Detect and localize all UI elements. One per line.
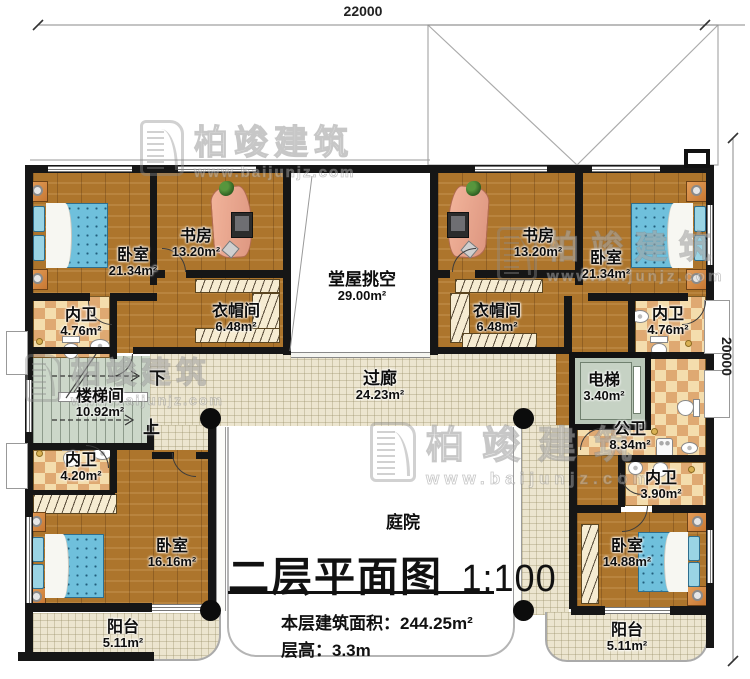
room-label-study-r: 书房 13.20m² (514, 228, 562, 259)
room-area: 5.11m² (607, 639, 647, 653)
room-area: 4.20m² (60, 469, 101, 483)
room-label-hall-void: 堂屋挑空 29.00m² (328, 271, 396, 303)
stair-down-label: 下 (149, 364, 166, 389)
room-label-stairwell: 楼梯间 10.92m² (76, 388, 124, 419)
room-area: 6.48m² (212, 320, 260, 334)
room-label-bedroom-tr: 卧室 21.34m² (582, 250, 630, 281)
floor-area-text: 本层建筑面积：244.25m² (281, 609, 473, 634)
room-label-bedroom-tl: 卧室 21.34m² (109, 247, 157, 278)
title-underline (228, 591, 494, 594)
room-label-bath-br: 内卫 3.90m² (640, 470, 681, 501)
room-name: 衣帽间 (212, 303, 260, 320)
room-name: 卧室 (582, 250, 630, 267)
room-area: 24.23m² (356, 388, 404, 402)
room-area: 6.48m² (473, 320, 521, 334)
room-name: 衣帽间 (473, 303, 521, 320)
floor-plan-canvas: 卧室 21.34m² 书房 13.20m² 堂屋挑空 29.00m² 书房 13… (0, 0, 750, 679)
room-label-elevator: 电梯 3.40m² (583, 372, 624, 403)
room-name: 楼梯间 (76, 388, 124, 405)
dimension-right: 20000 (719, 337, 735, 376)
room-area: 13.20m² (172, 245, 220, 259)
drawing-scale: 1:100 (462, 558, 557, 601)
stair-up-label: 上 (143, 413, 160, 438)
dimension-top: 22000 (318, 3, 408, 19)
room-label-cloak-l: 衣帽间 6.48m² (212, 303, 260, 334)
room-name: 内卫 (60, 452, 101, 469)
room-label-bath-tr: 内卫 4.76m² (647, 306, 688, 337)
room-name: 阳台 (607, 622, 647, 639)
room-area: 5.11m² (103, 636, 143, 650)
room-label-study-l: 书房 13.20m² (172, 228, 220, 259)
room-label-bedroom-br: 卧室 14.88m² (603, 538, 651, 569)
room-label-cloak-r: 衣帽间 6.48m² (473, 303, 521, 334)
room-area: 8.34m² (609, 438, 650, 452)
room-label-public-bath: 公卫 8.34m² (609, 421, 650, 452)
room-area: 4.76m² (60, 324, 101, 338)
room-area: 21.34m² (582, 267, 630, 281)
room-area: 13.20m² (514, 245, 562, 259)
room-area: 14.88m² (603, 555, 651, 569)
title-block: 二层平面图 1:100 (228, 543, 559, 603)
page-title: 二层平面图 (228, 543, 443, 603)
room-area: 16.16m² (148, 555, 196, 569)
room-area: 4.76m² (647, 323, 688, 337)
room-area: 21.34m² (109, 264, 157, 278)
room-name: 公卫 (609, 421, 650, 438)
room-name: 电梯 (583, 372, 624, 389)
room-label-corridor: 过廊 24.23m² (356, 370, 404, 402)
room-name: 内卫 (647, 306, 688, 323)
room-name: 卧室 (603, 538, 651, 555)
room-name: 内卫 (60, 307, 101, 324)
room-label-bath-bl: 内卫 4.20m² (60, 452, 101, 483)
room-label-balcony-r: 阳台 5.11m² (607, 622, 647, 653)
room-name: 卧室 (148, 538, 196, 555)
room-name: 卧室 (109, 247, 157, 264)
room-label-bedroom-bl: 卧室 16.16m² (148, 538, 196, 569)
room-name: 书房 (514, 228, 562, 245)
floor-height-text: 层高：3.3m (281, 636, 371, 661)
room-area: 10.92m² (76, 405, 124, 419)
room-label-bath-tl: 内卫 4.76m² (60, 307, 101, 338)
room-name: 阳台 (103, 619, 143, 636)
room-name: 书房 (172, 228, 220, 245)
room-area: 3.40m² (583, 389, 624, 403)
room-area: 3.90m² (640, 487, 681, 501)
room-label-balcony-l: 阳台 5.11m² (103, 619, 143, 650)
room-name: 过廊 (356, 370, 404, 388)
room-name: 堂屋挑空 (328, 271, 396, 289)
room-name: 庭院 (386, 514, 420, 532)
room-area: 29.00m² (328, 289, 396, 303)
room-name: 内卫 (640, 470, 681, 487)
room-label-courtyard: 庭院 (386, 514, 420, 532)
